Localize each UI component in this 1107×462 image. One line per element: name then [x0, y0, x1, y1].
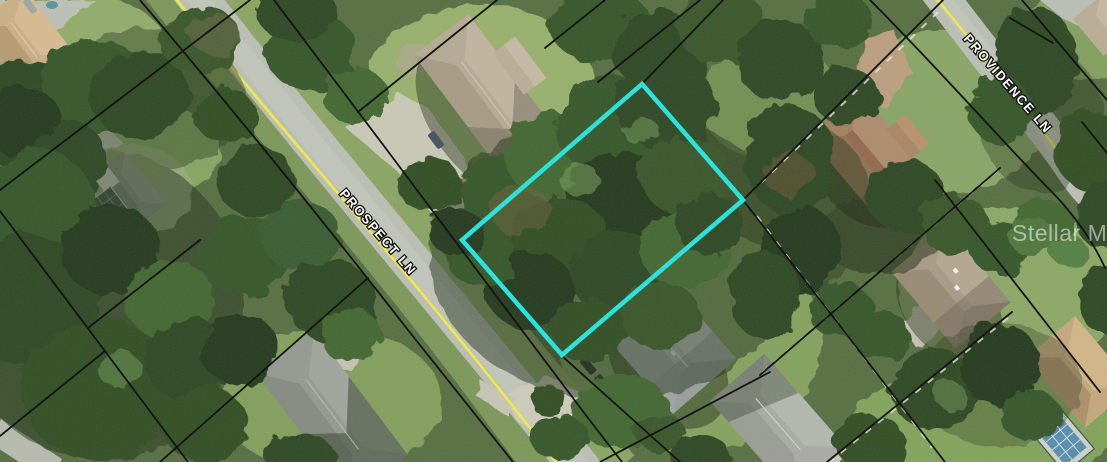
aerial-map-viewport: PROSPECT LN PROVIDENCE LN Stellar MLS	[0, 0, 1107, 462]
aerial-map-image: PROSPECT LN PROVIDENCE LN Stellar MLS	[0, 0, 1107, 462]
stellar-mls-watermark: Stellar MLS	[1012, 220, 1107, 246]
photo-grain-overlay	[0, 0, 1107, 462]
